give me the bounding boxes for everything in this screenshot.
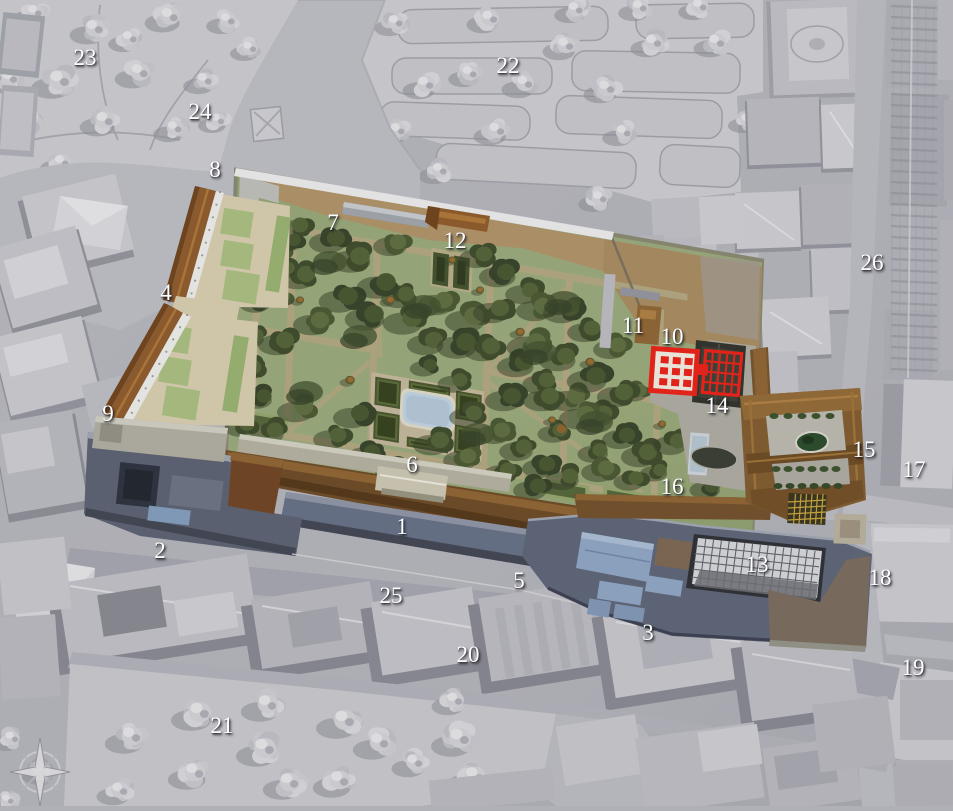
svg-text:22: 22 (497, 53, 520, 78)
svg-text:11: 11 (622, 313, 644, 338)
svg-text:25: 25 (380, 583, 403, 608)
svg-text:20: 20 (457, 642, 480, 667)
svg-text:3: 3 (642, 620, 654, 645)
svg-text:21: 21 (211, 713, 234, 738)
svg-text:8: 8 (209, 157, 221, 182)
svg-text:24: 24 (189, 99, 213, 124)
svg-text:26: 26 (861, 250, 884, 275)
svg-text:14: 14 (706, 393, 730, 418)
svg-text:4: 4 (160, 280, 172, 305)
svg-text:1: 1 (396, 514, 408, 539)
svg-text:12: 12 (444, 228, 467, 253)
svg-text:5: 5 (513, 568, 525, 593)
svg-text:6: 6 (406, 452, 418, 477)
svg-text:9: 9 (102, 401, 114, 426)
svg-text:17: 17 (903, 457, 926, 482)
svg-text:18: 18 (869, 565, 892, 590)
svg-text:23: 23 (74, 45, 97, 70)
svg-text:19: 19 (902, 655, 925, 680)
svg-text:7: 7 (327, 210, 339, 235)
svg-text:2: 2 (154, 538, 166, 563)
svg-text:16: 16 (661, 474, 684, 499)
svg-text:13: 13 (746, 552, 769, 577)
svg-text:10: 10 (661, 324, 684, 349)
svg-text:15: 15 (853, 437, 876, 462)
